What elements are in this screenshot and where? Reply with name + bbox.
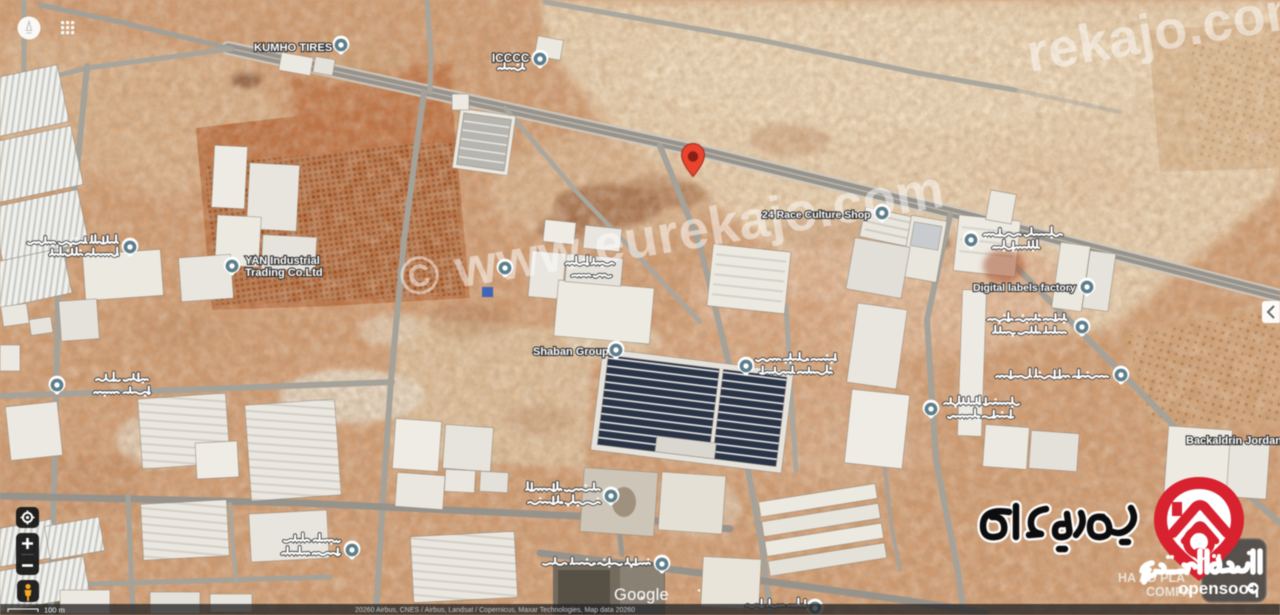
svg-text:Digital labels factory: Digital labels factory [973, 282, 1076, 294]
svg-text:YAN Industrial: YAN Industrial [245, 255, 320, 267]
svg-text:Shaban Group: Shaban Group [533, 346, 609, 358]
svg-text:100 m: 100 m [44, 606, 65, 615]
svg-text:Backaldrin Jordan: Backaldrin Jordan [1186, 435, 1280, 447]
svg-text:KUMHO TIRES: KUMHO TIRES [254, 42, 333, 54]
svg-text:opensooq: opensooq [1178, 579, 1259, 598]
svg-text:20260 Airbus, CNES / Airbus, L: 20260 Airbus, CNES / Airbus, Landsat / C… [355, 607, 635, 614]
svg-text:Google: Google [614, 586, 669, 604]
svg-text:24 Race Culture Shop: 24 Race Culture Shop [762, 209, 871, 221]
svg-text:Trading Co.Ltd: Trading Co.Ltd [245, 267, 323, 279]
